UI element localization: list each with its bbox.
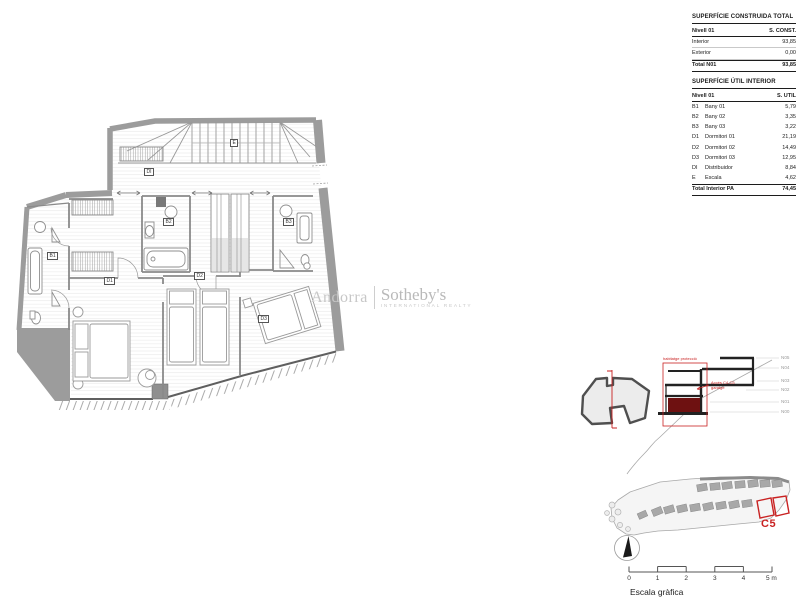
row-name: Distribuidor [705, 165, 785, 172]
scale-tick-3: 3 [708, 575, 722, 582]
scale-tick-4: 4 [736, 575, 750, 582]
scale-tick-2: 2 [679, 575, 693, 582]
room-label-bany1: B1 [47, 252, 58, 260]
total-value: 93,85 [782, 62, 796, 69]
room-label-dormitori3: D3 [258, 315, 269, 323]
room-label-dormitori1: D1 [104, 277, 115, 285]
wall-block [17, 328, 70, 401]
north-arrow-icon [615, 536, 640, 561]
table-total-row: Total N01 93,85 [692, 60, 796, 72]
watermark-subtitle: INTERNATIONAL REALTY [381, 304, 472, 309]
row-code: B3 [692, 124, 705, 131]
terrace-hatch [58, 401, 170, 410]
row-code: D3 [692, 155, 705, 162]
brand-watermark: Andorra Sotheby's INTERNATIONAL REALTY [311, 286, 472, 309]
scale-bar [629, 567, 772, 573]
table-header-row: Nivell 01 S. UTIL [692, 91, 796, 102]
col-sutil: S. UTIL [777, 93, 796, 100]
row-name: Dormitori 01 [705, 134, 782, 141]
level-label-n00: N00 [781, 409, 789, 414]
floor-plan [17, 120, 340, 410]
row-value: 4,62 [785, 175, 796, 182]
table-header-row: Nivell 01 S. CONST. [692, 26, 796, 37]
table-superficie-construida: SUPERFÍCIE CONSTRUIDA TOTAL Nivell 01 S.… [692, 14, 796, 72]
table-row: B1 Bany 01 5,79 [692, 102, 796, 112]
row-name: Bany 01 [705, 104, 785, 111]
row-name: Bany 02 [705, 114, 785, 121]
row-code: B1 [692, 104, 705, 111]
drawing-sheet: SUPERFÍCIE CONSTRUIDA TOTAL Nivell 01 S.… [0, 0, 800, 600]
room-label-distribuidor: DI [144, 168, 154, 176]
row-name: Dormitori 02 [705, 145, 782, 152]
watermark-brand: Andorra [311, 289, 368, 307]
row-name: Bany 03 [705, 124, 785, 131]
section-highlight-mass [668, 398, 700, 412]
room-label-bany3: B3 [283, 218, 294, 226]
total-name: Total N01 [692, 62, 782, 69]
row-code: B2 [692, 114, 705, 121]
table-row: DI Distribuidor 8,84 [692, 163, 796, 173]
total-value: 74,45 [782, 186, 796, 193]
table-row: D1 Dormitori 01 21,19 [692, 133, 796, 143]
watermark-divider [374, 286, 375, 309]
row-value: 0,00 [785, 50, 796, 57]
row-name: Exterior [692, 50, 785, 57]
col-level: Nivell 01 [692, 93, 777, 100]
unit-label-c5: C5 [761, 518, 776, 530]
row-name: Escala [705, 175, 785, 182]
level-label-n03: N03 [781, 378, 789, 383]
table-row: B3 Bany 03 3,22 [692, 123, 796, 133]
scale-tick-1: 1 [651, 575, 665, 582]
table-title: SUPERFÍCIE CONSTRUIDA TOTAL [692, 14, 796, 24]
row-value: 5,79 [785, 104, 796, 111]
table-superficie-util: SUPERFÍCIE ÚTIL INTERIOR Nivell 01 S. UT… [692, 79, 796, 196]
scale-caption: Escala gràfica [630, 587, 683, 597]
table-row: B2 Bany 02 3,35 [692, 112, 796, 122]
col-level: Nivell 01 [692, 28, 769, 35]
row-value: 21,19 [782, 134, 796, 141]
level-label-n01: N01 [781, 399, 789, 404]
row-code: E [692, 175, 705, 182]
section-note: Accés C4-C5 garatge [711, 381, 735, 390]
row-value: 8,84 [785, 165, 796, 172]
table-row: E Escala 4,62 [692, 174, 796, 184]
key-plan [582, 370, 649, 428]
level-label-n02: N02 [781, 387, 789, 392]
row-code: DI [692, 165, 705, 172]
table-row: D2 Dormitori 02 14,49 [692, 143, 796, 153]
duct [156, 197, 166, 207]
row-name: Dormitori 03 [705, 155, 782, 162]
level-label-n04: N04 [781, 365, 789, 370]
section-title: habitatge protecció [663, 357, 697, 362]
room-label-escala: E [230, 139, 238, 147]
scale-tick-0: 0 [622, 575, 636, 582]
total-name: Total Interior PA [692, 186, 782, 193]
scale-tick-5m: 5 m [766, 575, 780, 582]
table-row: Exterior 0,00 [692, 48, 796, 59]
section-note-line2: garatge [711, 386, 735, 391]
row-name: Interior [692, 39, 782, 46]
section-diagram [627, 358, 779, 474]
row-code: D1 [692, 134, 705, 141]
table-total-row: Total Interior PA 74,45 [692, 184, 796, 196]
room-label-dormitori2: D2 [194, 272, 205, 280]
row-value: 14,49 [782, 145, 796, 152]
row-code: D2 [692, 145, 705, 152]
col-sconst: S. CONST. [769, 28, 796, 35]
table-row: Interior 93,85 [692, 37, 796, 48]
watermark-name: Sotheby's [381, 287, 472, 302]
row-value: 12,95 [782, 155, 796, 162]
terrain-line [627, 360, 772, 474]
row-value: 3,35 [785, 114, 796, 121]
table-title: SUPERFÍCIE ÚTIL INTERIOR [692, 79, 796, 89]
room-label-bany2: B2 [163, 218, 174, 226]
row-value: 93,85 [782, 39, 796, 46]
pillar [152, 384, 168, 399]
table-row: D3 Dormitori 03 12,95 [692, 153, 796, 163]
row-value: 3,22 [785, 124, 796, 131]
level-label-n05: N05 [781, 355, 789, 360]
